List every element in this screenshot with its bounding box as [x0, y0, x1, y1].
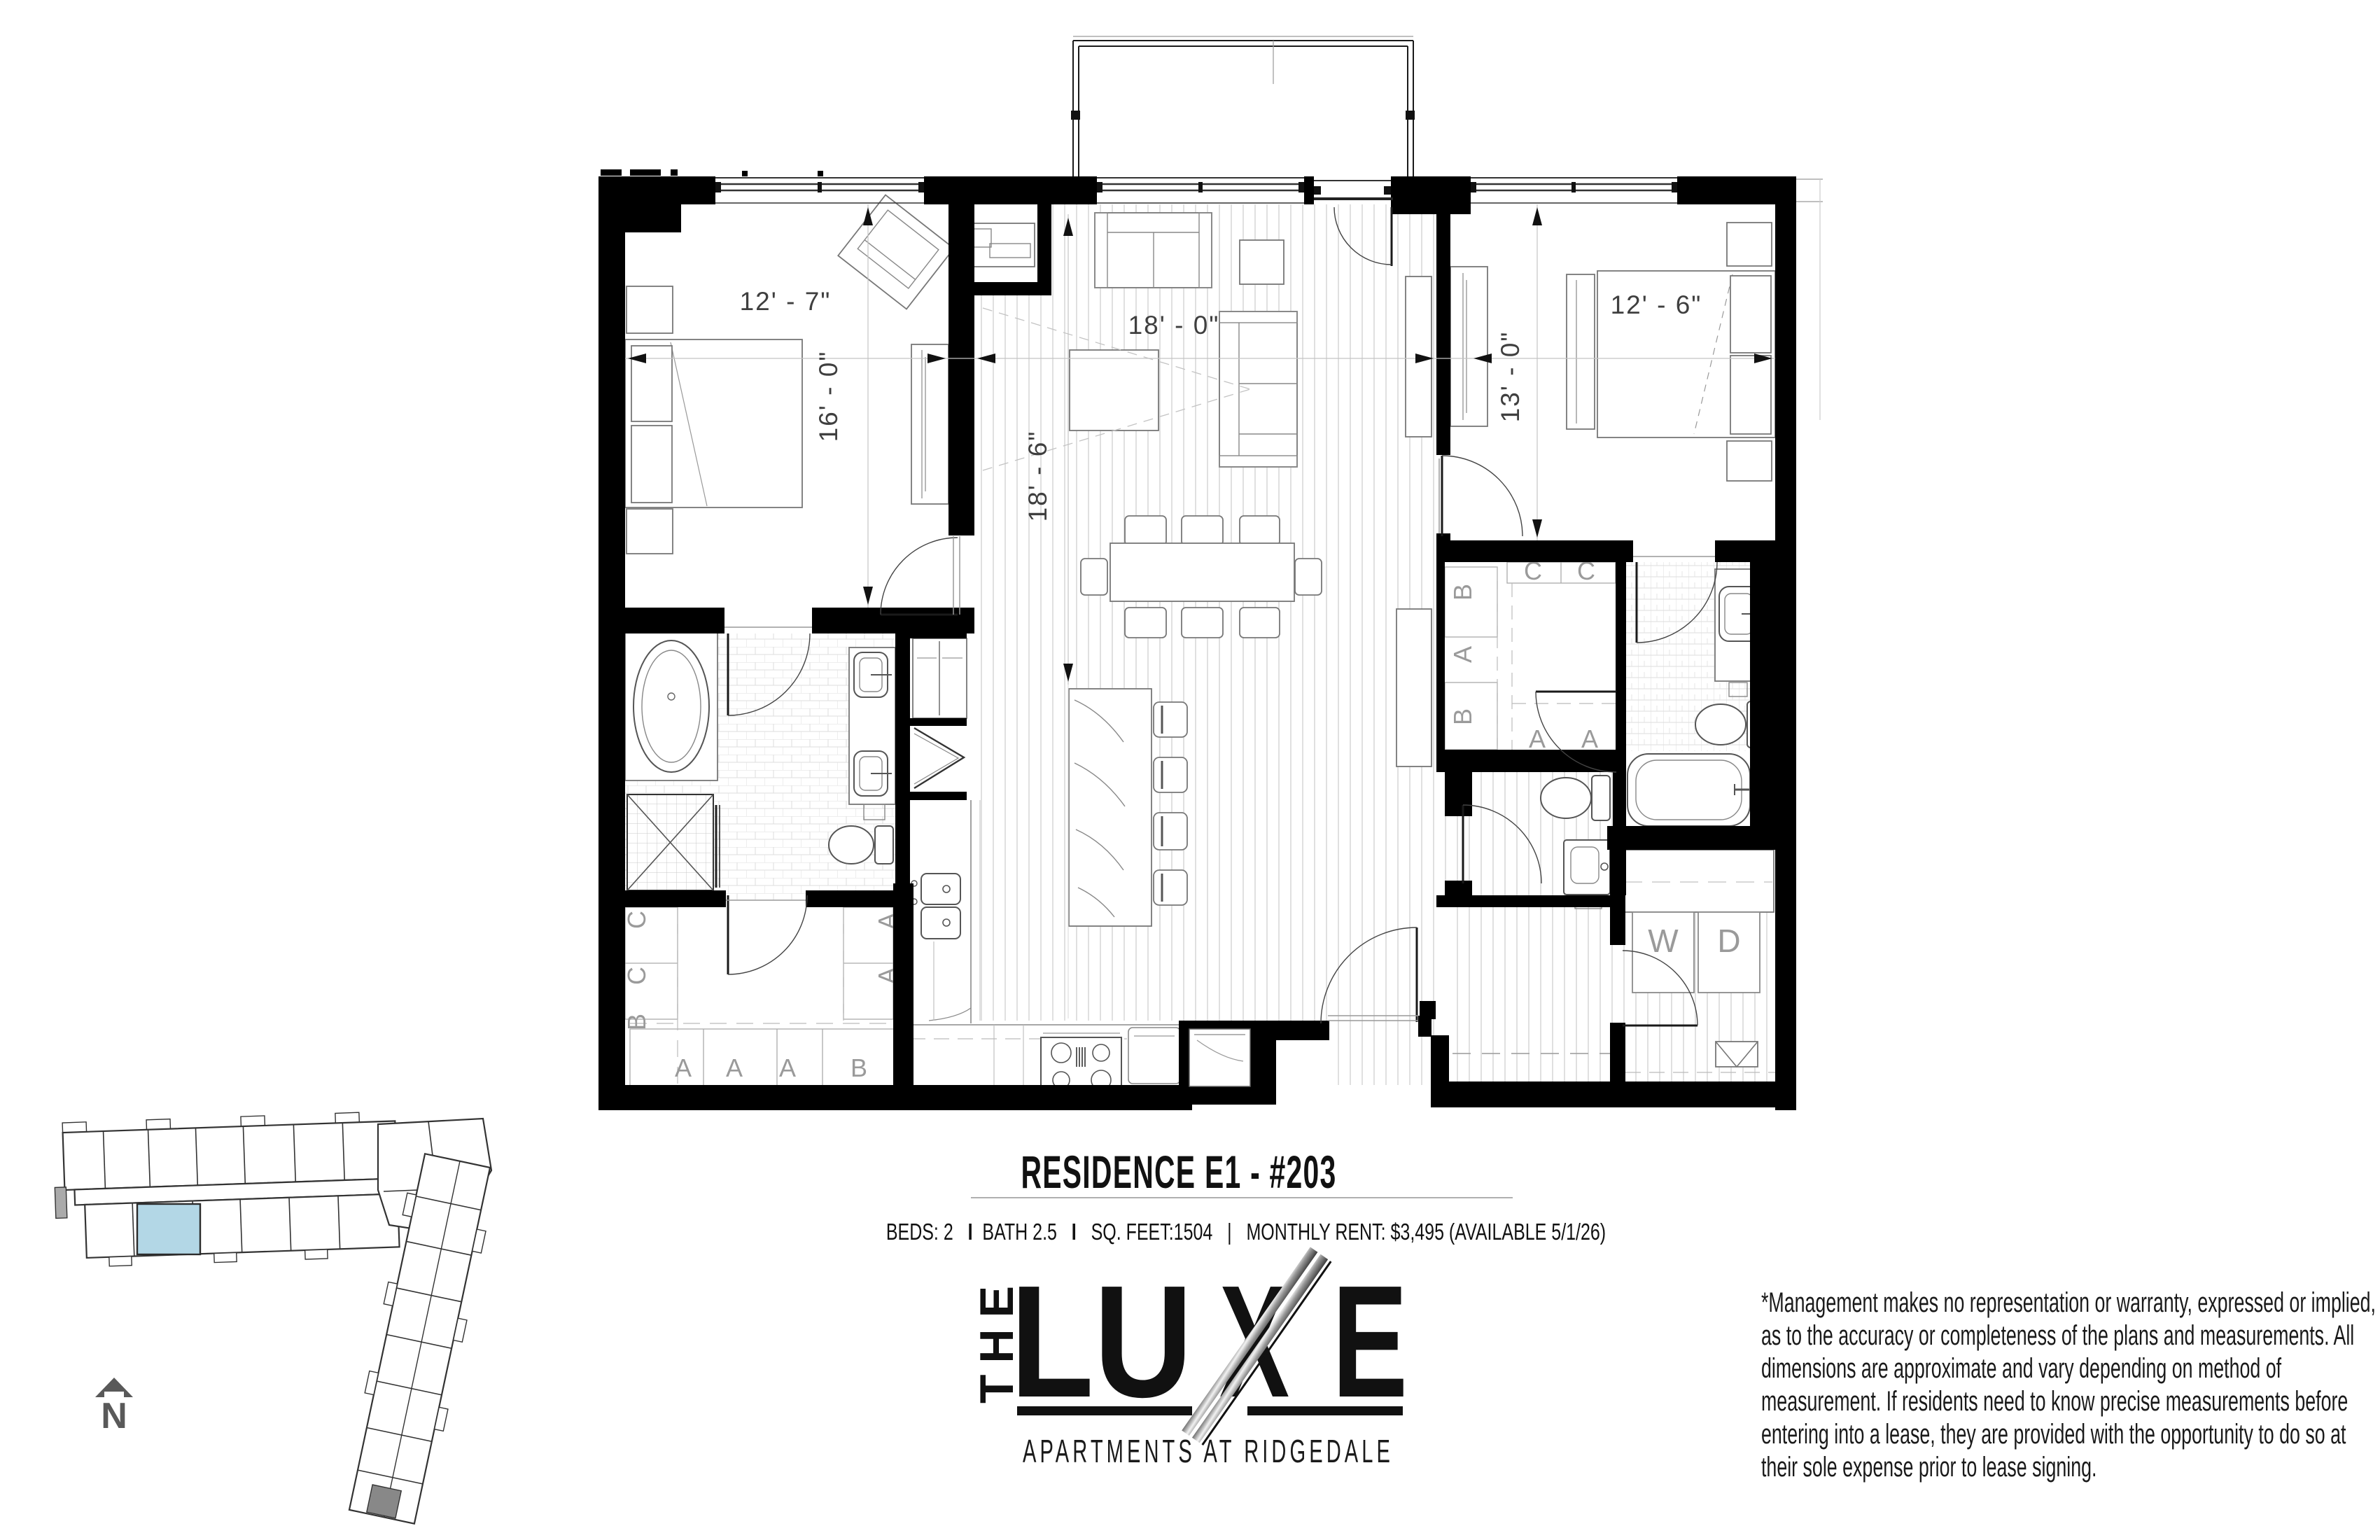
svg-text:13' - 0": 13' - 0" [1496, 331, 1525, 423]
svg-text:RESIDENCE E1 - #203: RESIDENCE E1 - #203 [1021, 1146, 1336, 1198]
svg-text:E: E [1332, 1253, 1408, 1431]
svg-text:A: A [1529, 724, 1546, 753]
svg-text:measurement. If residents need: measurement. If residents need to know p… [1761, 1386, 2348, 1417]
svg-text:entering into a lease, they ar: entering into a lease, they are provided… [1761, 1419, 2346, 1450]
svg-text:C: C [622, 911, 651, 929]
svg-text:their sole expense prior to le: their sole expense prior to lease signin… [1761, 1452, 2096, 1483]
svg-text:B: B [1448, 708, 1477, 725]
svg-text:N: N [101, 1396, 127, 1436]
svg-text:B: B [622, 1014, 651, 1030]
svg-text:12' - 7": 12' - 7" [740, 287, 832, 316]
svg-text:16' - 0": 16' - 0" [814, 351, 843, 442]
svg-text:A: A [1581, 724, 1598, 753]
svg-text:as to the accuracy or complete: as to the accuracy or completeness of th… [1761, 1320, 2354, 1352]
svg-text:A: A [726, 1053, 743, 1082]
svg-text:A: A [779, 1053, 796, 1082]
svg-text:B: B [1448, 584, 1477, 601]
svg-text:BEDS: 2 I BATH 2.5 I SQ: BEDS: 2 I BATH 2.5 I SQ. FEET:1504 | MON… [886, 1219, 1606, 1245]
svg-text:18' - 0": 18' - 0" [1128, 311, 1220, 339]
svg-text:dimensions are approximate and: dimensions are approximate and vary depe… [1761, 1353, 2282, 1385]
svg-text:APARTMENTS AT RIDGEDALE: APARTMENTS AT RIDGEDALE [1023, 1433, 1394, 1469]
svg-text:*Management makes no represent: *Management makes no representation or w… [1761, 1287, 2376, 1319]
svg-text:D: D [1717, 923, 1740, 959]
svg-text:C: C [622, 967, 651, 985]
svg-text:A: A [1448, 646, 1477, 663]
svg-text:A: A [675, 1053, 692, 1082]
svg-text:B: B [850, 1053, 867, 1082]
svg-text:LU: LU [1010, 1253, 1193, 1431]
svg-text:W: W [1648, 923, 1679, 959]
svg-text:12' - 6": 12' - 6" [1611, 290, 1702, 319]
svg-text:18' - 6": 18' - 6" [1023, 430, 1052, 522]
